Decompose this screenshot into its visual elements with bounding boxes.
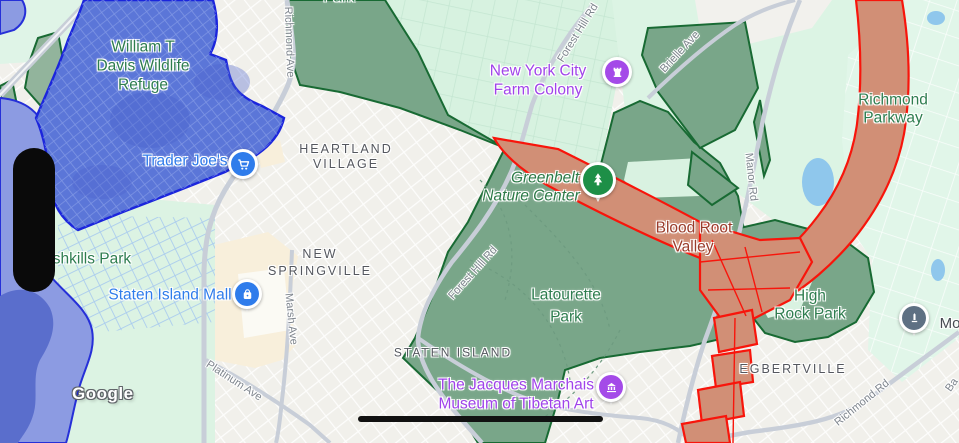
map-viewport[interactable]: Park William T Davis Wildlife Refuge Tra…: [0, 0, 959, 443]
label-greenbelt-2[interactable]: Nature Center: [482, 187, 579, 204]
home-indicator[interactable]: [358, 416, 603, 422]
label-greenbelt-1[interactable]: Greenbelt: [511, 169, 579, 186]
label-refuge-2[interactable]: Davis Wildlife: [96, 57, 189, 74]
label-richmond-pkwy-1[interactable]: Richmond: [858, 91, 928, 108]
label-high-rock-2[interactable]: Rock Park: [774, 305, 846, 322]
label-park-top[interactable]: Park: [323, 0, 355, 6]
castle-icon: [610, 65, 625, 80]
label-heartland-1: HEARTLAND: [299, 143, 392, 157]
label-museum-1[interactable]: The Jacques Marchais: [438, 376, 594, 393]
label-latourette-2[interactable]: Park: [550, 308, 582, 325]
label-farm-colony-1[interactable]: New York City: [490, 62, 586, 79]
label-richmond-pkwy-2[interactable]: Parkway: [863, 109, 922, 126]
monument-icon: [907, 311, 922, 326]
redaction-pill: [13, 148, 55, 292]
label-freshkills[interactable]: shkills Park: [53, 250, 131, 267]
label-high-rock-1[interactable]: High: [794, 287, 826, 304]
refuge-shade3: [72, 165, 132, 199]
label-si-mall[interactable]: Staten Island Mall: [108, 286, 231, 303]
label-new-springville-1: NEW: [302, 248, 337, 262]
label-moravian-partial[interactable]: Mo: [940, 316, 959, 333]
label-heartland-2: VILLAGE: [313, 158, 379, 172]
refuge-shade1: [110, 92, 190, 148]
label-blood-root-2[interactable]: Valley: [672, 238, 713, 255]
road-label-richmond-ave: Richmond Ave: [282, 6, 297, 77]
museum-icon: [604, 380, 619, 395]
pond-small-top: [927, 11, 945, 25]
label-farm-colony-2[interactable]: Farm Colony: [494, 81, 583, 98]
poi-pin-tibetan-museum[interactable]: [596, 372, 626, 410]
refuge-shade2: [194, 64, 250, 100]
poi-pin-cemetery[interactable]: [899, 303, 929, 341]
label-museum-2[interactable]: Museum of Tibetan Art: [438, 395, 593, 412]
label-refuge-1[interactable]: William T: [111, 38, 174, 55]
shopping-cart-icon: [236, 157, 251, 172]
label-blood-root-1[interactable]: Blood Root: [656, 219, 733, 236]
label-new-springville-2: SPRINGVILLE: [268, 265, 372, 279]
label-latourette-1[interactable]: Latourette: [531, 286, 601, 303]
poi-pin-si-mall[interactable]: [232, 279, 262, 317]
shopping-bag-icon: [240, 287, 255, 302]
label-egbertville: EGBERTVILLE: [739, 363, 846, 377]
pond-small-right: [931, 259, 945, 281]
label-refuge-3[interactable]: Refuge: [118, 76, 168, 93]
label-staten-island: STATEN ISLAND: [394, 346, 512, 359]
poi-pin-farm-colony[interactable]: [602, 57, 632, 95]
poi-pin-greenbelt-nature-center[interactable]: [580, 162, 616, 208]
label-trader-joes[interactable]: Trader Joe's: [142, 152, 227, 169]
poi-pin-trader-joes[interactable]: [228, 149, 258, 187]
google-watermark: Google: [72, 384, 134, 404]
pine-tree-icon: [589, 171, 607, 189]
